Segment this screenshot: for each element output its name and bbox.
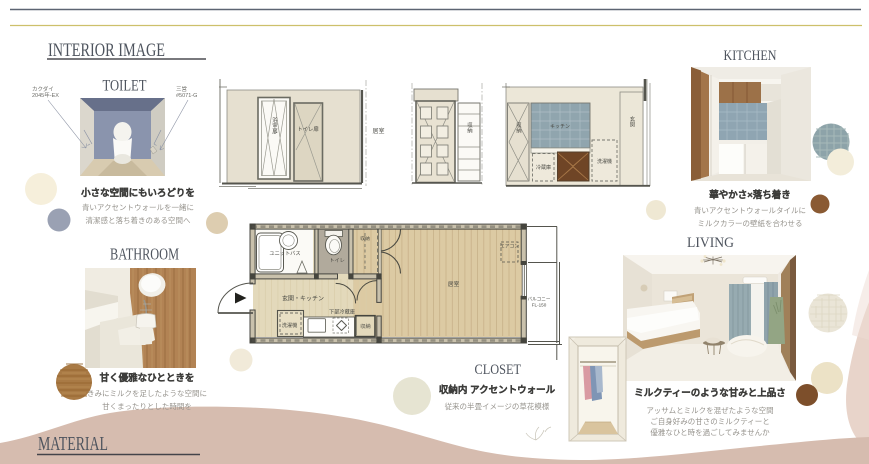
svg-text:華やかさ×落ち着き: 華やかさ×落ち着き bbox=[709, 189, 791, 201]
svg-text:バルコニー: バルコニー bbox=[528, 297, 551, 302]
svg-text:洗濯機: 洗濯機 bbox=[597, 158, 612, 165]
svg-text:甘くまったりとした時間を: 甘くまったりとした時間を bbox=[102, 401, 192, 411]
svg-text:FL-150: FL-150 bbox=[532, 303, 547, 308]
svg-text:従来の半畳イメージの草花模様: 従来の半畳イメージの草花模様 bbox=[445, 401, 550, 411]
svg-text:ミルクティーのような甘みと上品さ: ミルクティーのような甘みと上品さ bbox=[634, 387, 785, 399]
svg-text:TOILET: TOILET bbox=[103, 78, 147, 95]
svg-text:玄関: 玄関 bbox=[629, 115, 636, 129]
svg-text:きみにミルクを足したような空間に: きみにミルクを足したような空間に bbox=[87, 388, 207, 398]
svg-text:収納: 収納 bbox=[360, 322, 370, 330]
svg-text:キッチン: キッチン bbox=[550, 124, 570, 130]
svg-text:KITCHEN: KITCHEN bbox=[724, 48, 777, 64]
svg-text:居室: 居室 bbox=[372, 127, 384, 135]
svg-text:アッサムとミルクを混ぜたような空間: アッサムとミルクを混ぜたような空間 bbox=[646, 405, 773, 415]
svg-text:#5071-G: #5071-G bbox=[176, 93, 197, 99]
svg-text:収納内 アクセントウォール: 収納内 アクセントウォール bbox=[439, 384, 556, 396]
svg-text:下部冷蔵庫: 下部冷蔵庫 bbox=[329, 308, 355, 316]
svg-text:ご自身好みの甘さのミルクティーと: ご自身好みの甘さのミルクティーと bbox=[650, 416, 770, 426]
svg-text:小さな空間にもいろどりを: 小さな空間にもいろどりを bbox=[80, 187, 195, 199]
svg-text:CLOSET: CLOSET bbox=[475, 362, 522, 378]
svg-text:エアコン: エアコン bbox=[500, 244, 519, 250]
svg-text:2045年-EX: 2045年-EX bbox=[32, 91, 59, 99]
svg-text:浴室扉: 浴室扉 bbox=[271, 116, 278, 136]
svg-text:優雅なひと時を過ごしてみませんか: 優雅なひと時を過ごしてみませんか bbox=[650, 427, 770, 437]
svg-text:収納: 収納 bbox=[515, 122, 522, 135]
svg-text:冷蔵庫: 冷蔵庫 bbox=[536, 164, 551, 171]
svg-text:ミルクカラーの壁紙を合わせる: ミルクカラーの壁紙を合わせる bbox=[698, 218, 803, 228]
svg-text:青いアクセントウォールタイルに: 青いアクセントウォールタイルに bbox=[694, 205, 806, 215]
svg-text:トイレ: トイレ bbox=[329, 258, 345, 264]
svg-text:LIVING: LIVING bbox=[687, 235, 734, 251]
svg-text:甘く優雅なひとときを: 甘く優雅なひとときを bbox=[100, 372, 195, 384]
svg-text:BATHROOM: BATHROOM bbox=[110, 245, 179, 264]
svg-text:トイレ扉: トイレ扉 bbox=[297, 125, 319, 133]
svg-text:玄関・キッチン: 玄関・キッチン bbox=[282, 295, 324, 303]
svg-text:清潔感と落ち着きのある空間へ: 清潔感と落ち着きのある空間へ bbox=[86, 215, 191, 225]
svg-text:居室: 居室 bbox=[448, 280, 460, 288]
svg-text:MATERIAL: MATERIAL bbox=[38, 434, 108, 455]
svg-text:洗濯機: 洗濯機 bbox=[282, 321, 298, 329]
svg-text:INTERIOR IMAGE: INTERIOR IMAGE bbox=[48, 40, 165, 61]
svg-text:ユニットバス: ユニットバス bbox=[269, 250, 300, 257]
svg-text:収納: 収納 bbox=[466, 122, 473, 135]
svg-text:収納: 収納 bbox=[360, 235, 370, 242]
svg-text:青いアクセントウォールを一緒に: 青いアクセントウォールを一緒に bbox=[82, 202, 194, 212]
svg-text:カクダイ: カクダイ bbox=[32, 85, 54, 93]
svg-text:三営: 三営 bbox=[176, 85, 188, 93]
